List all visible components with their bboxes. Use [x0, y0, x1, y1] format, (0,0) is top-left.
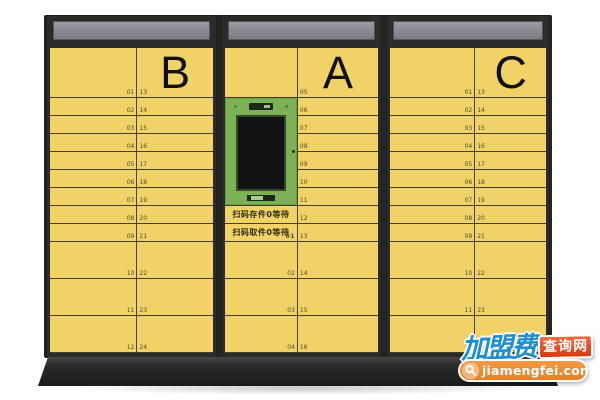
locker-door: 15	[137, 116, 213, 134]
door-number: 08	[465, 216, 473, 222]
cabinet-a-doors: 扫码存件0等待扫码取件0等待01020304 A0506070809101112…	[225, 48, 378, 353]
header-light-strip	[228, 21, 375, 40]
panel-notice: 扫码取件0等待01	[225, 224, 297, 242]
door-number: 09	[465, 234, 473, 240]
panel-notice-text: 扫码存件0等待	[232, 209, 289, 220]
cabinet-b: 010203040506070809101112 B13141516171819…	[46, 15, 217, 358]
cabinet-c-doors: 010203040506070809101112 C13141516171819…	[390, 48, 546, 353]
door-number: 22	[477, 271, 485, 277]
door-number: 13	[300, 234, 308, 240]
locker-door: 18	[475, 170, 546, 188]
door-number: 04	[287, 345, 295, 351]
locker-door: 06	[390, 170, 474, 188]
locker-door: 03	[225, 279, 297, 316]
locker-door: 17	[137, 152, 213, 170]
locker-door: 06	[50, 170, 136, 188]
door-number: 14	[139, 108, 147, 114]
screw-dot-icon	[234, 105, 237, 108]
locker-door: 09	[298, 152, 378, 170]
locker-door: 16	[298, 316, 378, 353]
locker-door: 14	[475, 98, 546, 116]
locker-door: 14	[298, 242, 378, 279]
door-number: 07	[465, 198, 473, 204]
locker-door: 08	[50, 206, 136, 224]
door-number: 17	[477, 162, 485, 168]
scanner-slot-icon	[249, 103, 273, 110]
door-number: 04	[127, 144, 135, 150]
door-number: 24	[139, 345, 147, 351]
cabinet-b-header	[46, 15, 217, 46]
door-number: 07	[127, 198, 135, 204]
locker-door: 11	[298, 188, 378, 206]
door-number: 01	[465, 90, 473, 96]
locker-door: 21	[137, 224, 213, 242]
locker-door: 09	[50, 224, 136, 242]
locker-door: 15	[475, 116, 546, 134]
door-number: 02	[287, 271, 295, 277]
locker-door: 01	[390, 48, 474, 98]
locker-door: 04	[50, 134, 136, 152]
locker-door	[225, 48, 297, 98]
locker-door: 08	[298, 134, 378, 152]
locker-door: A05	[298, 48, 378, 98]
door-number: 02	[465, 108, 473, 114]
cabinet-b-left-column: 010203040506070809101112	[50, 48, 136, 353]
locker-door: 19	[475, 188, 546, 206]
locker-door: 05	[50, 152, 136, 170]
door-number: 23	[477, 308, 485, 314]
locker-door: 20	[137, 206, 213, 224]
locker-door: 22	[475, 242, 546, 279]
locker-door: 04	[390, 134, 474, 152]
door-number: 15	[477, 126, 485, 132]
cabinet-letter: B	[137, 48, 213, 97]
door-number: 14	[477, 108, 485, 114]
locker-door: 02	[390, 98, 474, 116]
locker-door: 08	[390, 206, 474, 224]
watermark-suffix-badge: 查询网	[538, 334, 593, 359]
locker-door: 10	[298, 170, 378, 188]
door-number: 15	[139, 126, 147, 132]
locker-door: 15	[298, 279, 378, 316]
door-number: 10	[465, 271, 473, 277]
door-number: 22	[139, 271, 147, 277]
parcel-locker-photo: 010203040506070809101112 B13141516171819…	[0, 0, 600, 400]
locker-door: 23	[475, 279, 546, 316]
locker-door: B13	[137, 48, 213, 98]
cabinet-b-right-column: B131415161718192021222324	[136, 48, 213, 353]
locker-door: 12	[50, 316, 136, 353]
locker-door: 02	[50, 98, 136, 116]
locker-door: 13	[298, 224, 378, 242]
cabinet-letter: C	[475, 48, 546, 97]
door-number: 11	[300, 198, 308, 204]
door-number: 05	[300, 90, 308, 96]
cabinet-a-left-column: 扫码存件0等待扫码取件0等待01020304	[225, 48, 297, 353]
locker-door: 10	[390, 242, 474, 279]
door-number: 17	[139, 162, 147, 168]
watermark-domain-text: jiamengfei.com	[482, 363, 593, 378]
magnifier-icon	[462, 362, 479, 379]
locker-door: 01	[50, 48, 136, 98]
locker-door: 02	[225, 242, 297, 279]
cabinet-c-left-column: 010203040506070809101112	[390, 48, 474, 353]
door-number: 18	[139, 180, 147, 186]
door-number: 02	[127, 108, 135, 114]
door-number: 20	[139, 216, 147, 222]
panel-notice: 扫码存件0等待	[225, 206, 297, 224]
keyhole-icon	[292, 150, 295, 153]
locker-door: C13	[475, 48, 546, 98]
door-number: 06	[127, 180, 135, 186]
door-number: 11	[465, 308, 473, 314]
locker-door: 06	[298, 98, 378, 116]
card-slot-icon	[247, 195, 275, 201]
header-light-strip	[393, 21, 543, 40]
locker-door: 07	[50, 188, 136, 206]
cabinet-a-header	[221, 15, 382, 46]
locker-door: 10	[50, 242, 136, 279]
door-number: 08	[300, 144, 308, 150]
door-number: 10	[127, 271, 135, 277]
cabinet-a-right-column: A050607080910111213141516	[297, 48, 378, 353]
door-number: 19	[477, 198, 485, 204]
watermark-domain-pill: jiamengfei.com	[458, 359, 588, 382]
locker-door: 19	[137, 188, 213, 206]
door-number: 03	[465, 126, 473, 132]
door-number: 12	[300, 216, 308, 222]
door-number: 13	[139, 90, 147, 96]
door-number: 16	[300, 345, 308, 351]
locker-door: 22	[137, 242, 213, 279]
locker-door: 20	[475, 206, 546, 224]
locker-door: 11	[50, 279, 136, 316]
door-number: 09	[300, 162, 308, 168]
door-number: 04	[465, 144, 473, 150]
cabinet-c-right-column: C131415161718192021222324	[474, 48, 546, 353]
locker-door: 07	[390, 188, 474, 206]
header-light-strip	[53, 21, 210, 40]
locker-door: 24	[137, 316, 213, 353]
locker-door: 03	[390, 116, 474, 134]
locker-door: 18	[137, 170, 213, 188]
door-number: 10	[300, 180, 308, 186]
door-number: 05	[465, 162, 473, 168]
door-number: 16	[139, 144, 147, 150]
door-number: 06	[465, 180, 473, 186]
door-number: 21	[139, 234, 147, 240]
door-number: 15	[300, 308, 308, 314]
locker-door: 03	[50, 116, 136, 134]
locker-door: 16	[137, 134, 213, 152]
door-number: 08	[127, 216, 135, 222]
door-number: 09	[127, 234, 135, 240]
door-number: 12	[127, 345, 135, 351]
locker-door: 05	[390, 152, 474, 170]
locker-door: 04	[225, 316, 297, 353]
door-number: 14	[300, 271, 308, 277]
door-number: 20	[477, 216, 485, 222]
door-number: 13	[477, 90, 485, 96]
locker-unit: 010203040506070809101112 B13141516171819…	[44, 15, 552, 358]
door-number: 01	[286, 234, 295, 240]
door-number: 03	[287, 308, 295, 314]
door-number: 16	[477, 144, 485, 150]
cabinet-b-doors: 010203040506070809101112 B13141516171819…	[50, 48, 213, 353]
door-number: 03	[127, 126, 135, 132]
door-number: 19	[139, 198, 147, 204]
panel-notice-text: 扫码取件0等待	[232, 227, 289, 238]
door-number: 07	[300, 126, 308, 132]
locker-door: 12	[298, 206, 378, 224]
locker-door: 14	[137, 98, 213, 116]
cabinet-c: 010203040506070809101112 C13141516171819…	[386, 15, 550, 358]
cabinet-letter: A	[298, 48, 378, 97]
door-number: 23	[139, 308, 147, 314]
door-number: 21	[477, 234, 485, 240]
floor-shadow	[70, 381, 530, 395]
locker-door: 16	[475, 134, 546, 152]
locker-door: 07	[298, 116, 378, 134]
locker-door: 09	[390, 224, 474, 242]
cabinet-a: 扫码存件0等待扫码取件0等待01020304 A0506070809101112…	[221, 15, 382, 358]
door-number: 18	[477, 180, 485, 186]
locker-door: 11	[390, 279, 474, 316]
door-number: 06	[300, 108, 308, 114]
door-number: 05	[127, 162, 135, 168]
touch-screen	[236, 115, 286, 191]
door-number: 11	[127, 308, 135, 314]
screw-dot-icon	[285, 105, 288, 108]
control-panel	[225, 98, 297, 206]
locker-door: 17	[475, 152, 546, 170]
locker-door: 21	[475, 224, 546, 242]
locker-door: 23	[137, 279, 213, 316]
door-number: 01	[127, 90, 135, 96]
cabinet-c-header	[386, 15, 550, 46]
